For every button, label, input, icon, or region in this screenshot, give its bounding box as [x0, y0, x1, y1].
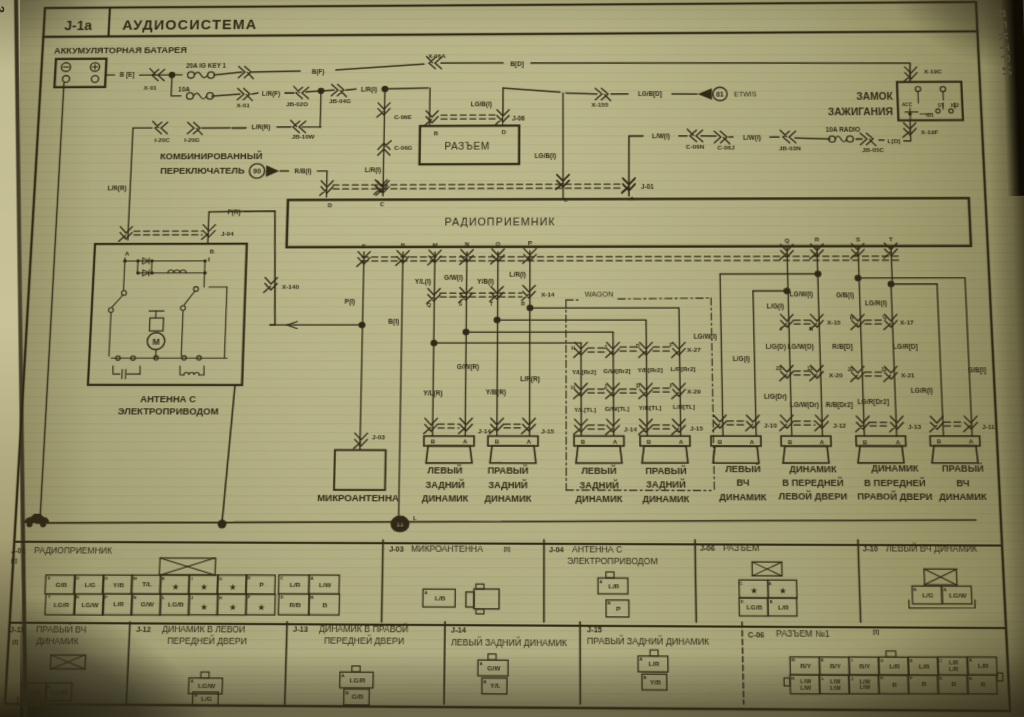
svg-text:B: B — [495, 440, 499, 446]
svg-text:I-20C: I-20C — [154, 138, 170, 144]
svg-text:P: P — [259, 582, 264, 589]
svg-text:C: C — [739, 582, 742, 586]
svg-text:90: 90 — [253, 169, 261, 176]
svg-text:R: R — [850, 316, 855, 322]
svg-text:G/W[TL]: G/W[TL] — [605, 407, 630, 413]
svg-text:JB-03N: JB-03N — [779, 146, 801, 152]
svg-text:LG/B: LG/B — [746, 605, 762, 612]
svg-text:L/W: L/W — [830, 685, 841, 692]
svg-text:C-06G: C-06G — [394, 146, 413, 152]
svg-text:T/L: T/L — [142, 582, 152, 589]
svg-text:L/R(F): L/R(F) — [262, 91, 280, 97]
svg-text:A: A — [943, 588, 947, 593]
svg-text:J-15: J-15 — [587, 626, 602, 634]
svg-text:L/G: L/G — [84, 583, 96, 590]
svg-text:Y/B(I): Y/B(I) — [477, 280, 494, 286]
svg-text:B: B — [863, 440, 868, 447]
svg-text:J-06: J-06 — [512, 117, 525, 123]
svg-text:Y/B: Y/B — [650, 680, 661, 687]
svg-text:LG/B(I): LG/B(I) — [535, 154, 556, 160]
svg-text:M: M — [133, 577, 137, 581]
svg-text:J-04: J-04 — [221, 232, 235, 238]
svg-text:B: B — [323, 602, 328, 609]
svg-text:X-01: X-01 — [143, 86, 157, 92]
svg-text:B: B — [210, 250, 215, 256]
svg-text:J-13: J-13 — [293, 626, 308, 634]
svg-text:G: G — [880, 659, 884, 664]
svg-text:LG/B: LG/B — [168, 602, 184, 609]
svg-text:F: F — [248, 596, 251, 600]
svg-text:КОМБИНИРОВАННЫЙ: КОМБИНИРОВАННЫЙ — [160, 150, 263, 161]
svg-text:L/W(I): L/W(I) — [743, 135, 761, 141]
svg-text:JB-02O: JB-02O — [286, 102, 308, 108]
svg-text:C: C — [939, 659, 943, 664]
svg-text:J-15: J-15 — [690, 427, 704, 434]
svg-text:J-13: J-13 — [908, 425, 922, 432]
svg-text:L/R: L/R — [113, 602, 125, 609]
svg-text:L/R[TL]: L/R[TL] — [673, 405, 695, 411]
svg-text:АНТЕННА С: АНТЕННА С — [140, 393, 197, 404]
svg-text:K: K — [162, 577, 165, 581]
svg-text:P: P — [528, 241, 532, 247]
svg-text:22: 22 — [776, 366, 782, 372]
svg-text:LG/W: LG/W — [949, 593, 967, 600]
svg-text:J-1a: J-1a — [64, 18, 93, 33]
svg-text:A: A — [639, 658, 642, 663]
svg-text:ЛЕВЫЙ: ЛЕВЫЙ — [427, 464, 462, 476]
svg-text:G/B[I]: G/B[I] — [968, 368, 986, 374]
svg-text:АУДИОСИСТЕМА: АУДИОСИСТЕМА — [122, 16, 258, 32]
svg-text:G: G — [219, 577, 222, 581]
svg-text:20A IG KEY 1: 20A IG KEY 1 — [186, 63, 227, 70]
svg-text:ПРАВЫЙ: ПРАВЫЙ — [487, 464, 528, 476]
svg-text:L/G(Dr): L/G(Dr) — [764, 395, 787, 401]
svg-text:E: E — [248, 577, 251, 581]
svg-text:ДИНАМИК: ДИНАМИК — [36, 636, 79, 646]
svg-text:ДИНАМИК: ДИНАМИК — [485, 493, 533, 504]
svg-text:A: A — [768, 582, 771, 586]
svg-text:E: E — [910, 659, 914, 664]
svg-text:J-04: J-04 — [549, 547, 564, 555]
svg-text:L: L — [162, 596, 165, 600]
svg-text:★: ★ — [779, 586, 787, 596]
svg-text:X-20: X-20 — [829, 373, 844, 379]
svg-text:LG/R(I): LG/R(I) — [865, 301, 887, 307]
svg-text:N: N — [791, 677, 795, 682]
svg-text:Y/L[Rr2]: Y/L[Rr2] — [572, 370, 596, 376]
svg-text:МИКРОАНТЕННА: МИКРОАНТЕННА — [411, 544, 484, 554]
svg-text:J-06: J-06 — [700, 546, 715, 554]
svg-text:I: I — [191, 577, 192, 581]
svg-text:X-155: X-155 — [592, 103, 610, 109]
svg-text:L/W: L/W — [319, 582, 332, 589]
svg-text:L/R: L/R — [778, 605, 790, 612]
svg-text:B: B — [769, 600, 772, 605]
svg-text:★: ★ — [257, 602, 265, 612]
svg-text:[I]: [I] — [873, 629, 879, 636]
svg-text:C: C — [280, 577, 283, 581]
svg-text:Y/L(I): Y/L(I) — [415, 280, 431, 286]
svg-text:J-11: J-11 — [10, 626, 25, 634]
svg-text:LG/R(I): LG/R(I) — [911, 389, 933, 395]
svg-text:B: B — [345, 691, 348, 696]
svg-text:I: I — [852, 659, 853, 664]
svg-text:L/R: L/R — [609, 584, 621, 591]
svg-text:R/B[D]: R/B[D] — [832, 345, 853, 351]
svg-text:X-15: X-15 — [827, 321, 842, 327]
svg-text:J-01: J-01 — [641, 185, 655, 191]
svg-text:LG/R: LG/R — [53, 602, 70, 609]
svg-text:A: A — [599, 580, 602, 584]
svg-text:ДИНАМИК: ДИНАМИК — [719, 491, 767, 502]
svg-text:G/B: G/B — [55, 582, 67, 589]
svg-text:В ПЕРЕДНЕЙ: В ПЕРЕДНЕЙ — [782, 476, 844, 488]
svg-text:ДИНАМИК: ДИНАМИК — [939, 491, 988, 502]
svg-text:B: B — [431, 440, 435, 446]
svg-text:X-29: X-29 — [687, 390, 702, 396]
svg-text:ДИНАМИК: ДИНАМИК — [422, 493, 470, 504]
svg-text:S: S — [458, 302, 462, 308]
svg-text:R/B: R/B — [289, 602, 300, 609]
svg-text:ЗАДНИЙ: ЗАДНИЙ — [425, 478, 464, 490]
svg-text:L/W: L/W — [800, 685, 811, 692]
svg-text:R: R — [815, 238, 821, 244]
svg-text:G/W: G/W — [487, 666, 501, 673]
svg-text:J: J — [851, 677, 854, 682]
svg-text:P(R): P(R) — [227, 210, 240, 216]
svg-text:ДИНАМИК: ДИНАМИК — [789, 463, 837, 474]
svg-text:22: 22 — [848, 367, 855, 373]
svg-text:M: M — [152, 337, 160, 346]
svg-text:H: H — [571, 386, 575, 392]
svg-text:★: ★ — [229, 602, 237, 612]
svg-text:G/W[Rr2]: G/W[Rr2] — [603, 369, 630, 375]
svg-text:N: N — [809, 327, 814, 333]
svg-text:L/W(I): L/W(I) — [652, 134, 670, 140]
svg-text:B(I): B(I) — [388, 320, 399, 326]
svg-text:[I]: [I] — [504, 547, 510, 554]
svg-text:МИКРОАНТЕННА: МИКРОАНТЕННА — [317, 492, 400, 503]
svg-text:Y/L: Y/L — [490, 684, 501, 691]
svg-text:G/B(I): G/B(I) — [836, 293, 854, 299]
svg-text:G/B: G/B — [352, 695, 364, 702]
svg-text:R: R — [951, 682, 957, 689]
svg-text:R: R — [981, 682, 987, 689]
svg-text:ЗАДНИЙ: ЗАДНИЙ — [646, 478, 686, 490]
svg-text:B: B — [718, 440, 723, 447]
svg-text:R: R — [892, 682, 898, 689]
svg-text:N: N — [133, 596, 137, 600]
svg-text:E: E — [362, 244, 366, 250]
svg-text:Q: Q — [784, 238, 790, 244]
svg-text:X-14: X-14 — [541, 293, 555, 299]
svg-text:ETWIS: ETWIS — [734, 92, 757, 99]
svg-text:ЛЕВЫЙ ВЧ ДИНАМИК: ЛЕВЫЙ ВЧ ДИНАМИК — [886, 543, 978, 553]
svg-text:LG/R[Dr2]: LG/R[Dr2] — [857, 400, 889, 407]
svg-text:O: O — [76, 577, 80, 581]
svg-text:ДИНАМИК: ДИНАМИК — [871, 463, 920, 474]
svg-text:L/R(I): L/R(I) — [361, 87, 377, 93]
svg-text:Y/B[TL]: Y/B[TL] — [639, 406, 662, 412]
svg-text:R: R — [521, 302, 525, 308]
svg-text:ЗАДНИЙ: ЗАДНИЙ — [579, 478, 619, 490]
svg-text:J-10: J-10 — [764, 424, 778, 431]
svg-text:L/R(R): L/R(R) — [107, 186, 126, 192]
svg-text:R/B(I): R/B(I) — [294, 169, 311, 175]
svg-text:B: B — [310, 596, 313, 600]
svg-text:G/B: G/B — [29, 690, 41, 697]
svg-text:L/B: L/B — [435, 596, 446, 603]
svg-text:L/R(I): L/R(I) — [365, 168, 381, 174]
svg-text:B[D]: B[D] — [510, 62, 523, 68]
svg-text:10A RADIO: 10A RADIO — [825, 127, 860, 134]
svg-text:A: A — [47, 685, 51, 690]
svg-text:J-01: J-01 — [11, 548, 26, 556]
svg-text:ЭЛЕКТРОПРИВОДОМ: ЭЛЕКТРОПРИВОДОМ — [567, 556, 658, 566]
svg-text:J-12: J-12 — [136, 626, 151, 634]
svg-text:B: B — [647, 440, 651, 447]
svg-text:L/G: L/G — [201, 697, 213, 704]
svg-text:X-06A: X-06A — [428, 54, 446, 60]
svg-text:B [E]: B [E] — [120, 73, 135, 79]
svg-text:ВЧ: ВЧ — [956, 477, 970, 488]
svg-text:C-06E: C-06E — [394, 115, 412, 121]
svg-text:LG/W(D): LG/W(D) — [787, 345, 814, 351]
svg-text:WAGON: WAGON — [585, 292, 614, 299]
svg-text:РАДИОПРИЕМНИК: РАДИОПРИЕМНИК — [34, 545, 113, 555]
svg-text:Y/B[Rr2]: Y/B[Rr2] — [637, 368, 662, 374]
svg-text:LG/W(I): LG/W(I) — [790, 292, 814, 298]
svg-text:ДИНАМИК: ДИНАМИК — [576, 493, 624, 504]
svg-text:АККУМУЛЯТОРНАЯ БАТАРЕЯ: АККУМУЛЯТОРНАЯ БАТАРЕЯ — [54, 45, 187, 56]
svg-text:[I]: [I] — [11, 559, 17, 566]
svg-text:J-14: J-14 — [624, 428, 638, 435]
svg-text:C-06: C-06 — [748, 631, 765, 639]
svg-text:ПРАВЫЙ: ПРАВЫЙ — [645, 464, 686, 476]
svg-text:P(I): P(I) — [345, 300, 356, 306]
svg-text:B: B — [23, 685, 27, 690]
svg-text:L/R: L/R — [290, 582, 302, 589]
svg-text:JB-04G: JB-04G — [329, 99, 351, 105]
svg-text:L/R(R): L/R(R) — [520, 377, 540, 383]
svg-text:X-21: X-21 — [901, 374, 916, 380]
svg-text:LG/B(I): LG/B(I) — [471, 102, 492, 108]
svg-text:F: F — [910, 677, 914, 682]
svg-text:A: A — [125, 252, 130, 258]
svg-text:Y/B: Y/B — [113, 582, 124, 589]
svg-text:B: B — [607, 602, 610, 606]
svg-text:JB-05C: JB-05C — [862, 148, 885, 154]
svg-text:L/R: L/R — [889, 664, 901, 671]
svg-text:ЗАМОК: ЗАМОК — [856, 92, 893, 103]
svg-text:ЛЕВЫЙ: ЛЕВЫЙ — [725, 462, 761, 474]
svg-text:B(F): B(F) — [312, 70, 325, 76]
svg-text:ВЧ: ВЧ — [736, 477, 749, 488]
svg-text:R/B[Dr2]: R/B[Dr2] — [826, 403, 853, 410]
svg-text:РАЗЪЕМ: РАЗЪЕМ — [444, 142, 489, 153]
svg-text:J-11: J-11 — [982, 425, 996, 432]
svg-text:★: ★ — [172, 582, 180, 592]
svg-text:X-17: X-17 — [900, 321, 915, 327]
svg-text:ДИНАМИК: ДИНАМИК — [642, 493, 690, 504]
svg-text:ЛЕВЫЙ ЗАДНИЙ ДИНАМИК: ЛЕВЫЙ ЗАДНИЙ ДИНАМИК — [451, 637, 567, 648]
svg-text:LG/W: LG/W — [81, 602, 99, 609]
svg-text:M: M — [791, 659, 795, 664]
svg-text:ДИНАМИК В ПРАВОЙ: ДИНАМИК В ПРАВОЙ — [319, 624, 409, 635]
svg-text:ПЕРЕДНЕЙ ДВЕРИ: ПЕРЕДНЕЙ ДВЕРИ — [167, 636, 247, 647]
svg-text:АНТЕННА С: АНТЕННА С — [572, 544, 623, 554]
svg-text:ЗАДНИЙ: ЗАДНИЙ — [488, 478, 527, 490]
svg-text:A: A — [969, 440, 974, 447]
svg-text:B/Y: B/Y — [830, 664, 841, 671]
svg-text:N: N — [465, 242, 470, 248]
svg-text:B: B — [913, 588, 917, 593]
svg-text:J-03: J-03 — [389, 547, 404, 555]
svg-text:T: T — [889, 237, 894, 243]
svg-text:J: J — [604, 385, 607, 391]
svg-text:D: D — [939, 677, 943, 682]
svg-text:LG/R[D]: LG/R[D] — [893, 345, 918, 351]
svg-text:B: B — [483, 680, 486, 685]
svg-text:ACC: ACC — [902, 102, 914, 107]
svg-text:J-12: J-12 — [833, 424, 847, 431]
svg-text:H: H — [219, 596, 222, 600]
svg-text:B: B — [434, 131, 438, 137]
svg-text:ПЕРЕДНЕЙ ДВЕРИ: ПЕРЕДНЕЙ ДВЕРИ — [324, 636, 404, 647]
svg-text:O: O — [105, 577, 109, 581]
svg-text:G/W: G/W — [141, 602, 155, 609]
svg-text:L/R: L/R — [919, 664, 931, 671]
svg-text:I-20G: I-20G — [184, 138, 200, 144]
svg-text:J-14: J-14 — [451, 627, 466, 635]
svg-text:L/R: L/R — [978, 664, 990, 671]
svg-text:Q: Q — [427, 303, 431, 309]
svg-text:P: P — [105, 596, 109, 600]
svg-text:В ПЕРЕДНЕЙ: В ПЕРЕДНЕЙ — [864, 476, 926, 488]
svg-text:A: A — [424, 591, 427, 595]
svg-text:L/R(I): L/R(I) — [509, 273, 526, 279]
svg-text:ПЕРЕКЛЮЧАТЕЛЬ: ПЕРЕКЛЮЧАТЕЛЬ — [160, 166, 245, 176]
svg-text:★: ★ — [200, 582, 208, 592]
svg-text:Q: Q — [883, 315, 888, 321]
svg-text:J-15: J-15 — [541, 429, 555, 435]
svg-text:L/G(I): L/G(I) — [767, 305, 784, 311]
svg-text:B/Y: B/Y — [800, 664, 811, 671]
svg-text:ЛЕВОЙ ДВЕРИ: ЛЕВОЙ ДВЕРИ — [778, 490, 847, 502]
svg-text:ПРАВЫЙ ЗАДНИЙ ДИНАМИК: ПРАВЫЙ ЗАДНИЙ ДИНАМИК — [587, 636, 710, 647]
svg-text:G/W(R): G/W(R) — [457, 365, 479, 371]
svg-text:ЗАЖИГАНИЯ: ЗАЖИГАНИЯ — [828, 107, 894, 118]
svg-text:L/W: L/W — [859, 685, 870, 692]
svg-text:X-27: X-27 — [687, 348, 702, 354]
svg-text:X-19C: X-19C — [924, 70, 943, 76]
svg-text:F: F — [670, 384, 673, 390]
svg-text:LG/R: LG/R — [52, 690, 69, 697]
svg-text:ПРАВЫЙ ВЧ: ПРАВЫЙ ВЧ — [36, 624, 87, 634]
svg-text:F: F — [670, 343, 673, 349]
svg-text:L/G(D): L/G(D) — [766, 345, 786, 351]
svg-text:★: ★ — [229, 582, 237, 592]
svg-text:LG/R: LG/R — [350, 678, 367, 685]
svg-text:J-10: J-10 — [863, 545, 879, 553]
svg-text:ДИНАМИК В ЛЕВОЙ: ДИНАМИК В ЛЕВОЙ — [162, 624, 245, 635]
svg-text:B: B — [194, 694, 198, 699]
svg-text:JB-10W: JB-10W — [292, 135, 315, 141]
svg-text:A: A — [750, 440, 755, 447]
svg-text:РАЗЪЕМ №1: РАЗЪЕМ №1 — [776, 629, 830, 639]
svg-text:H: H — [571, 346, 575, 352]
svg-text:L: L — [564, 198, 568, 204]
svg-text:G/W(I): G/W(I) — [444, 276, 463, 282]
svg-text:ЭЛЕКТРОПРИВОДОМ: ЭЛЕКТРОПРИВОДОМ — [118, 406, 219, 417]
svg-text:A: A — [341, 674, 344, 679]
svg-text:L/R[Rr2]: L/R[Rr2] — [671, 367, 696, 373]
svg-text:R: R — [76, 596, 80, 600]
svg-text:Y/L(R): Y/L(R) — [423, 392, 442, 398]
svg-text:Y/L[TL]: Y/L[TL] — [574, 408, 596, 414]
svg-text:J: J — [191, 596, 194, 600]
svg-text:D: D — [328, 203, 333, 209]
svg-text:L/G(I): L/G(I) — [733, 357, 750, 363]
svg-text:LG/B[D]: LG/B[D] — [638, 92, 662, 98]
svg-text:D: D — [502, 130, 506, 136]
svg-text:X-19F: X-19F — [921, 130, 939, 136]
svg-text:O: O — [496, 242, 501, 248]
svg-text:S: S — [856, 237, 861, 243]
svg-text:L/R(R): L/R(R) — [251, 125, 270, 131]
svg-text:РАДИОПРИЕМНИК: РАДИОПРИЕМНИК — [444, 217, 555, 229]
svg-text:L/R: L/R — [649, 662, 661, 669]
svg-text:A: A — [190, 680, 194, 685]
svg-text:Y/B(R): Y/B(R) — [486, 391, 506, 397]
svg-text:M: M — [432, 243, 437, 249]
svg-text:C-06N: C-06N — [686, 145, 704, 151]
svg-text:L/R: L/R — [949, 667, 959, 674]
svg-text:B: B — [401, 243, 406, 249]
svg-text:P: P — [616, 606, 621, 613]
svg-text:A: A — [969, 659, 973, 664]
svg-text:ПРАВОЙ ДВЕРИ: ПРАВОЙ ДВЕРИ — [857, 490, 933, 502]
svg-text:R: R — [922, 682, 928, 689]
svg-text:[I]: [I] — [12, 640, 18, 647]
svg-text:LG/W(I): LG/W(I) — [693, 335, 716, 341]
svg-text:A: A — [310, 577, 313, 581]
svg-text:D: D — [740, 600, 743, 605]
svg-text:S: S — [47, 577, 51, 581]
svg-text:D: D — [280, 596, 283, 600]
svg-text:РАЗЪЕМ: РАЗЪЕМ — [723, 543, 760, 553]
svg-text:A: A — [479, 662, 482, 667]
svg-text:★: ★ — [200, 602, 208, 612]
svg-text:X-140: X-140 — [282, 285, 300, 291]
svg-text:J-03: J-03 — [372, 435, 386, 441]
svg-text:C-06J: C-06J — [717, 146, 734, 152]
svg-text:X-01: X-01 — [236, 103, 250, 109]
svg-text:H: H — [880, 677, 884, 682]
svg-text:C: C — [380, 202, 385, 208]
svg-text:B: B — [969, 677, 973, 682]
svg-text:L: L — [821, 677, 825, 682]
svg-text:81: 81 — [716, 91, 724, 98]
svg-text:ПРАВЫЙ: ПРАВЫЙ — [942, 462, 984, 474]
svg-text:L/G: L/G — [922, 593, 934, 600]
svg-text:T: T — [490, 302, 493, 308]
svg-text:★: ★ — [750, 586, 758, 596]
svg-text:K: K — [821, 659, 825, 664]
svg-text:L[D]: L[D] — [887, 139, 900, 145]
svg-text:ЛЕВЫЙ: ЛЕВЫЙ — [581, 464, 616, 476]
svg-text:A: A — [630, 197, 635, 203]
